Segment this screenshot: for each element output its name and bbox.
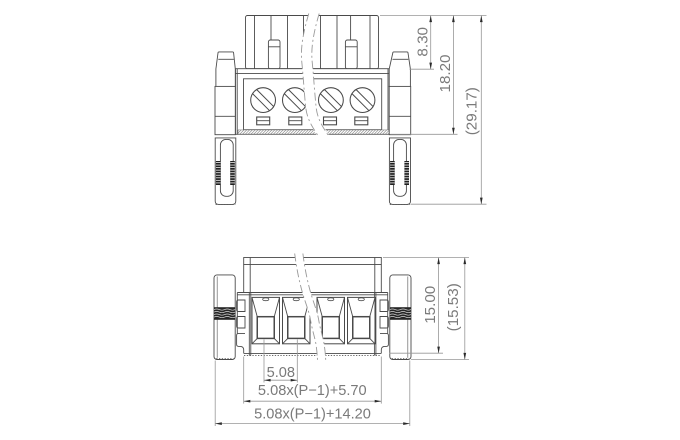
svg-text:(29.17): (29.17) [463,87,480,135]
svg-text:5.08: 5.08 [267,365,295,381]
svg-text:5.08x(P−1)+5.70: 5.08x(P−1)+5.70 [258,383,367,399]
svg-text:(15.53): (15.53) [445,283,462,331]
svg-text:5.08x(P−1)+14.20: 5.08x(P−1)+14.20 [254,406,371,422]
svg-text:8.30: 8.30 [415,27,432,57]
svg-text:15.00: 15.00 [422,286,439,324]
svg-text:18.20: 18.20 [437,54,454,92]
